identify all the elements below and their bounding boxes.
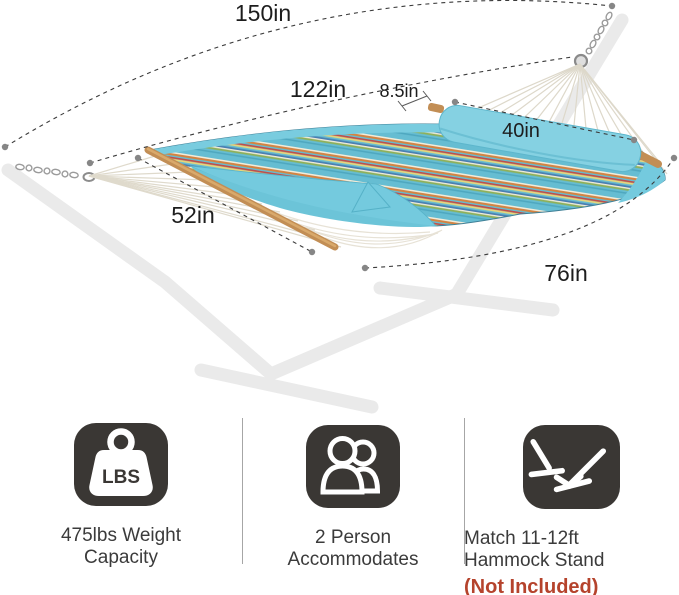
hammock-stand-icon xyxy=(523,425,620,509)
weight-lbs-icon: LBS xyxy=(74,423,168,506)
two-person-label: 2 Person Accommodates xyxy=(242,527,464,571)
lbs-text: LBS xyxy=(102,467,140,488)
feature-hammock-stand: Match 11-12ft Hammock Stand (Not Include… xyxy=(464,417,679,595)
persons-line1: 2 Person xyxy=(242,527,464,549)
hammock-stand-label: Match 11-12ft Hammock Stand (Not Include… xyxy=(464,528,679,595)
weight-line1: 475lbs Weight xyxy=(0,525,242,547)
weight-capacity-label: 475lbs Weight Capacity xyxy=(0,525,242,569)
weight-line2: Capacity xyxy=(0,547,242,569)
feature-two-person: 2 Person Accommodates xyxy=(242,417,464,571)
dimension-label-150in: 150in xyxy=(235,0,291,26)
stand-line2: Hammock Stand xyxy=(464,550,679,572)
stand-line1: Match 11-12ft xyxy=(464,528,679,550)
dimension-label-40in: 40in xyxy=(502,120,540,142)
dimension-label-52in: 52in xyxy=(171,202,214,228)
hammock-product-infographic: 150in 122in 8.5in 40in 52in 76in LBS 475… xyxy=(0,0,679,595)
stand-not-included-note: (Not Included) xyxy=(464,576,679,595)
feature-strip: LBS 475lbs Weight Capacity xyxy=(0,417,679,595)
hammock-dimension-diagram: 150in 122in 8.5in 40in 52in 76in xyxy=(0,0,679,417)
dimension-label-122in: 122in xyxy=(290,76,346,102)
dimension-label-8-5in: 8.5in xyxy=(379,81,418,101)
persons-line2: Accommodates xyxy=(242,549,464,571)
feature-weight-capacity: LBS 475lbs Weight Capacity xyxy=(0,417,242,569)
dimension-label-76in: 76in xyxy=(544,260,587,286)
two-person-icon xyxy=(306,425,400,508)
